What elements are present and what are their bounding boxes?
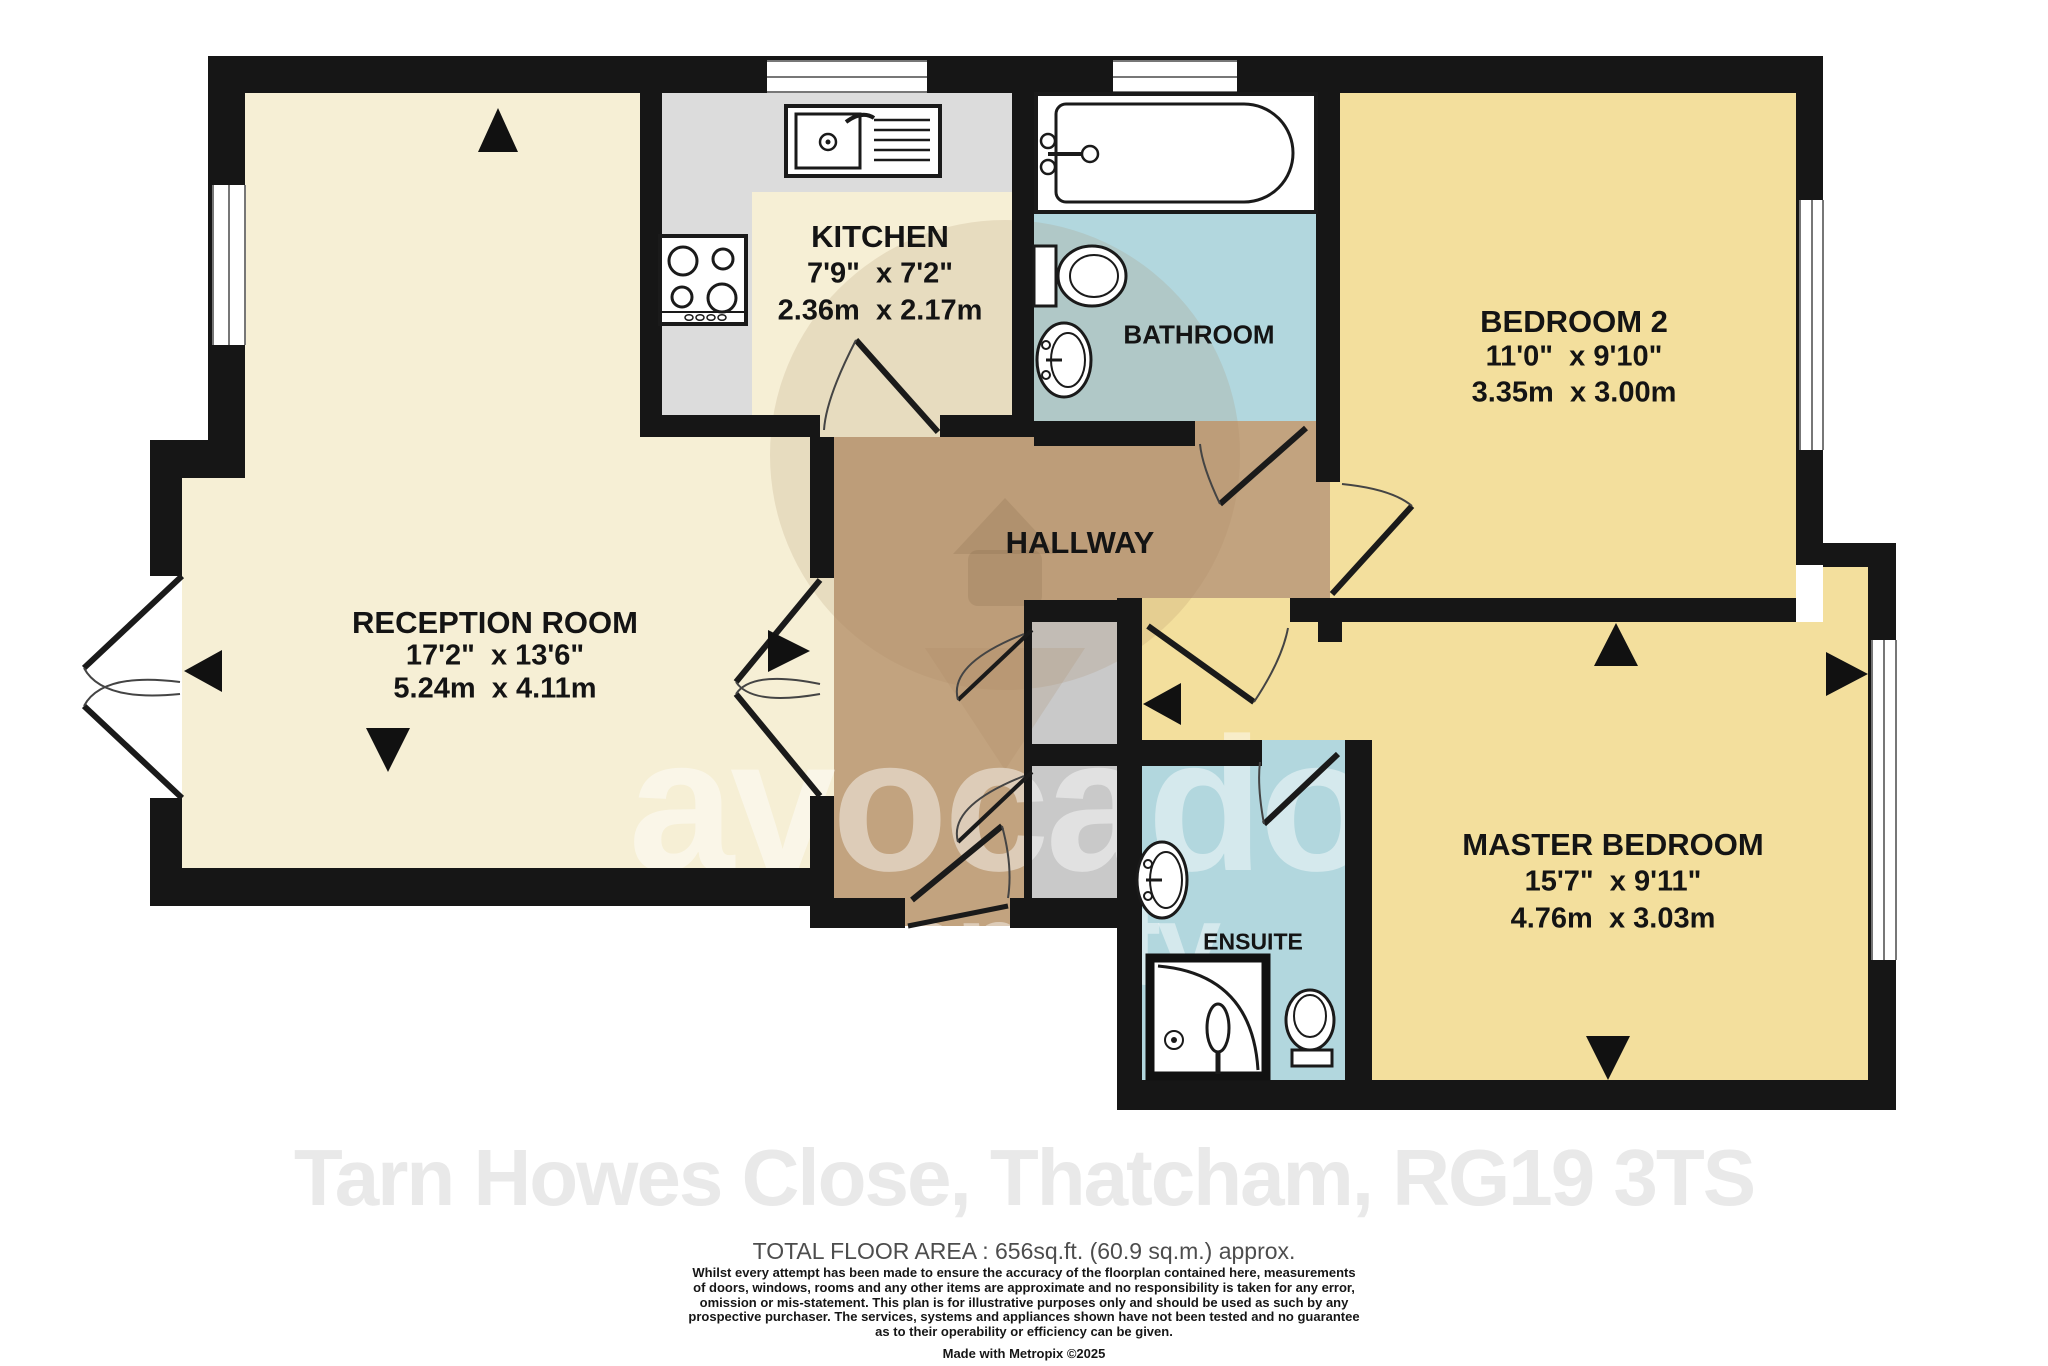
bedroom2-dims-imperial: 11'0" x 9'10" xyxy=(1486,341,1663,374)
wall-ensuite-right xyxy=(1345,740,1372,1080)
reception-dims-imperial: 17'2" x 13'6" xyxy=(406,640,584,673)
master-bedroom-label: MASTER BEDROOM xyxy=(1462,827,1763,863)
disclaimer-line: Whilst every attempt has been made to en… xyxy=(0,1266,2048,1281)
reception-window xyxy=(212,185,246,345)
master-dims-metric: 4.76m x 3.03m xyxy=(1511,903,1716,936)
bathroom-window xyxy=(1113,60,1237,93)
bedroom2-window xyxy=(1799,200,1824,450)
kitchen-label: KITCHEN xyxy=(811,219,949,255)
bedroom2-label: BEDROOM 2 xyxy=(1480,304,1668,340)
wall-bottom-reception xyxy=(150,868,834,906)
bedroom2-dims-metric: 3.35m x 3.00m xyxy=(1472,377,1677,410)
reception-floor-inset xyxy=(182,478,245,868)
kitchen-window xyxy=(767,60,927,93)
wall-master-bottom xyxy=(1117,1080,1896,1110)
wall-ensuite-top xyxy=(1142,740,1262,766)
bathroom-label: BATHROOM xyxy=(1123,320,1274,351)
wall-bedroom2-bottom xyxy=(1290,598,1796,622)
wall-left-mid xyxy=(150,470,182,576)
reception-dims-metric: 5.24m x 4.11m xyxy=(393,673,596,706)
master-dims-imperial: 15'7" x 9'11" xyxy=(1525,866,1702,899)
wall-top xyxy=(208,56,1823,93)
total-floor-area: TOTAL FLOOR AREA : 656sq.ft. (60.9 sq.m.… xyxy=(0,1238,2048,1265)
wall-kitchen-left xyxy=(640,93,662,437)
disclaimer: Whilst every attempt has been made to en… xyxy=(0,1266,2048,1362)
metropix-credit: Made with Metropix ©2025 xyxy=(0,1347,2048,1362)
master-window xyxy=(1871,640,1897,960)
wall-reception-hall-lower xyxy=(810,796,834,870)
disclaimer-line: omission or mis-statement. This plan is … xyxy=(0,1296,2048,1311)
wall-bottom-hall-left xyxy=(810,898,905,928)
watermark-pin-circle xyxy=(770,220,1240,690)
wall-master-left xyxy=(1117,598,1142,1110)
reception-label: RECEPTION ROOM xyxy=(352,605,638,641)
wall-bedroom2-door-jamb xyxy=(1318,598,1342,642)
wall-bathroom-bottom xyxy=(1034,421,1195,446)
master-floor-step xyxy=(1823,567,1868,622)
disclaimer-line: prospective purchaser. The services, sys… xyxy=(0,1310,2048,1325)
ensuite-label: ENSUITE xyxy=(1203,929,1303,956)
wall-cupboard-divider xyxy=(1024,744,1142,766)
kitchen-dims-imperial: 7'9" x 7'2" xyxy=(807,258,953,291)
kitchen-dims-metric: 2.36m x 2.17m xyxy=(778,295,983,328)
floorplan-page: avocado property xyxy=(0,0,2048,1366)
wall-kitchen-bottom-left xyxy=(640,415,820,437)
wall-cupboard-top xyxy=(1024,600,1142,622)
wall-kitchen-bathroom xyxy=(1012,93,1034,437)
wall-bathroom-bedroom2 xyxy=(1316,93,1340,482)
disclaimer-line: of doors, windows, rooms and any other i… xyxy=(0,1281,2048,1296)
french-doors-icon xyxy=(84,576,182,798)
disclaimer-line: as to their operability or efficiency ca… xyxy=(0,1325,2048,1340)
hallway-label: HALLWAY xyxy=(1006,525,1155,561)
address-watermark: Tarn Howes Close, Thatcham, RG19 3TS xyxy=(294,1132,1754,1224)
wall-reception-hall-upper xyxy=(810,437,834,578)
